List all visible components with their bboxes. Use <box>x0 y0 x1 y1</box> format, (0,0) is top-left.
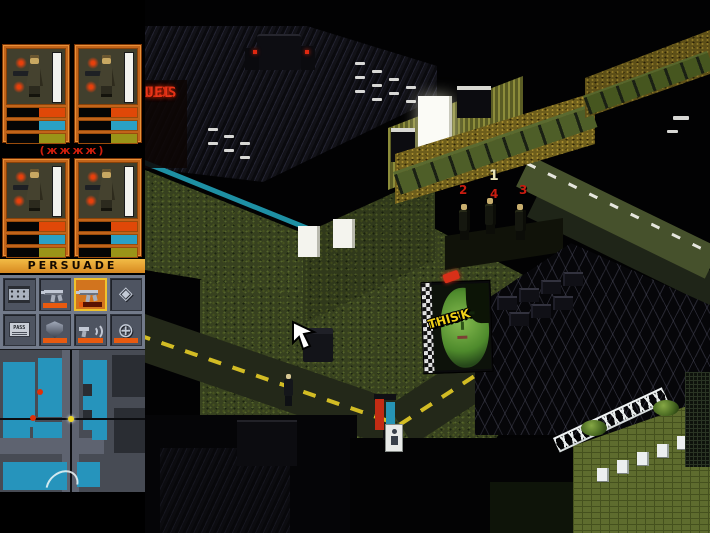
mouse-cursor-arrow <box>290 320 318 352</box>
wall-window-slit <box>372 70 382 73</box>
ammo-bar <box>43 338 68 343</box>
wall-window-slit <box>355 62 365 65</box>
building-a-door <box>298 226 320 257</box>
rooftop-crate <box>531 304 551 318</box>
ipa-adrenaline-bar[interactable] <box>78 221 138 232</box>
squad-row-bottom <box>0 158 145 257</box>
rooftop-crate <box>541 280 561 294</box>
agent-panel-2[interactable] <box>74 44 142 143</box>
pedestrian[interactable] <box>281 374 296 408</box>
minimap-block <box>38 358 62 417</box>
health-bar <box>52 166 62 217</box>
machine-light <box>305 50 309 54</box>
squad-agent-1[interactable] <box>483 198 498 238</box>
agent-panel-4[interactable] <box>74 158 142 257</box>
minimap-block <box>33 422 62 438</box>
game-viewport[interactable]: ANT LDS UEL <box>145 0 710 533</box>
street-sign <box>385 424 403 452</box>
inventory-panel: ◈ PASS ⊕ <box>0 275 145 349</box>
agent-panel-1[interactable] <box>2 44 70 143</box>
squad-group-indicator[interactable]: (жжжж) <box>0 143 145 158</box>
rooftop-crate <box>519 288 539 302</box>
rooftop-machine <box>245 26 317 78</box>
minimap-block <box>114 408 145 453</box>
wall-window-slit <box>667 130 678 133</box>
billboard-lips <box>457 336 467 339</box>
agent-portrait[interactable] <box>6 48 66 105</box>
shield-icon <box>46 321 63 338</box>
hud-panel: (жжжж) <box>0 0 145 533</box>
hud-top-spacer <box>0 0 145 44</box>
ipa-perception-bar[interactable] <box>6 120 66 131</box>
rooftop-crate <box>553 296 573 310</box>
ipa-intelligence-bar[interactable] <box>78 133 138 144</box>
rooftop-structure <box>237 420 297 466</box>
persuade-button[interactable]: PERSUADE <box>0 257 145 275</box>
ammo-bar <box>78 338 103 343</box>
wall-window-slit <box>224 149 234 152</box>
scanner-crosshair-icon: ⊕ <box>117 321 134 339</box>
wall-window-slit <box>240 156 250 159</box>
wall-window-slit <box>355 76 365 79</box>
neon-line-3: UEL <box>145 80 173 106</box>
building-b-window <box>457 86 491 118</box>
minimap-block <box>77 462 100 487</box>
gem-icon: ◈ <box>119 285 133 303</box>
ipa-intelligence-bar[interactable] <box>6 133 66 144</box>
building-a-wall <box>145 164 307 296</box>
agent-sprite <box>93 169 119 213</box>
minimap-block <box>3 422 30 438</box>
inventory-slot-persuadertron[interactable] <box>74 314 107 347</box>
uzi-icon <box>78 286 102 302</box>
ammo-bar <box>79 302 102 307</box>
ammo-bar <box>43 303 68 308</box>
wall-window-slit <box>372 84 382 87</box>
ipa-adrenaline-bar[interactable] <box>78 107 138 118</box>
inventory-slot-shield[interactable] <box>39 314 72 347</box>
uzi-icon <box>43 286 67 302</box>
health-bar <box>124 52 134 103</box>
persuadertron-icon <box>78 322 102 338</box>
minimap-player-dot <box>68 416 74 422</box>
wall-window <box>637 452 649 466</box>
agent-portrait[interactable] <box>6 162 66 219</box>
health-bar <box>124 166 134 217</box>
minimap-enemy-dot <box>37 389 43 395</box>
rooftop-crate <box>509 312 529 326</box>
ipa-perception-bar[interactable] <box>6 234 66 245</box>
wall-window-slit <box>406 86 416 89</box>
billboard: DRINK THIS <box>420 280 493 374</box>
rooftop-crate <box>563 272 583 286</box>
machine-light <box>253 50 257 54</box>
minimap-block <box>83 384 92 396</box>
wall-window-slit <box>389 78 399 81</box>
agent-number-marker: 4 <box>490 188 498 200</box>
squad-agent-2[interactable] <box>457 204 472 244</box>
hud-bottom-spacer <box>0 492 145 533</box>
wall-window-slit <box>372 98 382 101</box>
agent-sprite <box>21 55 47 99</box>
agent-sprite <box>93 55 119 99</box>
ipa-perception-bar[interactable] <box>78 120 138 131</box>
wall-window <box>617 460 629 474</box>
billboard-nose <box>461 322 464 330</box>
agent-panel-3[interactable] <box>2 158 70 257</box>
ammo-bar <box>114 338 139 343</box>
wall-window <box>657 444 669 458</box>
chain-fence <box>685 372 710 467</box>
neon-sign: ANT LDS UEL <box>145 80 187 168</box>
inventory-slot-chip[interactable] <box>3 278 36 311</box>
wall-window-slit <box>673 116 689 120</box>
inventory-slot-scanner[interactable]: ⊕ <box>110 314 143 347</box>
ipa-adrenaline-bar[interactable] <box>6 107 66 118</box>
pass-card-icon: PASS <box>9 322 30 337</box>
minimap-block <box>112 355 145 397</box>
inventory-slot-uzi-2-selected[interactable] <box>74 278 107 311</box>
minimap-road <box>0 438 104 454</box>
wall-window-slit <box>389 92 399 95</box>
wall-window-slit <box>240 142 250 145</box>
agent-number-marker: 1 <box>489 170 499 182</box>
wall-window-slit <box>208 128 218 131</box>
minimap-block <box>92 426 107 440</box>
bush <box>581 420 607 436</box>
inventory-slot-uzi-1[interactable] <box>39 278 72 311</box>
inventory-slot-gem[interactable]: ◈ <box>110 278 143 311</box>
rooftop-crate <box>497 296 517 310</box>
agent-portrait[interactable] <box>78 162 138 219</box>
bush <box>653 400 679 416</box>
chip-icon <box>8 286 30 303</box>
agent-sprite <box>21 169 47 213</box>
squad-agent-3[interactable] <box>513 204 528 244</box>
wall-window-slit <box>208 142 218 145</box>
wall-window-slit <box>355 90 365 93</box>
agent-number-marker: 3 <box>519 184 527 196</box>
ipa-intelligence-bar[interactable] <box>6 247 66 258</box>
agent-portrait[interactable] <box>78 48 138 105</box>
ipa-adrenaline-bar[interactable] <box>6 221 66 232</box>
ipa-intelligence-bar[interactable] <box>78 247 138 258</box>
game-screen: (жжжж) <box>0 0 710 533</box>
wall-window-slit <box>224 135 234 138</box>
wall-window <box>597 468 609 482</box>
wall-window-slit <box>406 100 416 103</box>
inventory-slot-pass-card[interactable]: PASS <box>3 314 36 347</box>
ipa-perception-bar[interactable] <box>78 234 138 245</box>
minimap[interactable] <box>0 349 145 492</box>
agent-number-marker: 2 <box>459 184 467 196</box>
building-a-door <box>333 219 355 248</box>
health-bar <box>52 52 62 103</box>
squad-row-top <box>0 44 145 143</box>
minimap-enemy-dot <box>30 415 36 421</box>
